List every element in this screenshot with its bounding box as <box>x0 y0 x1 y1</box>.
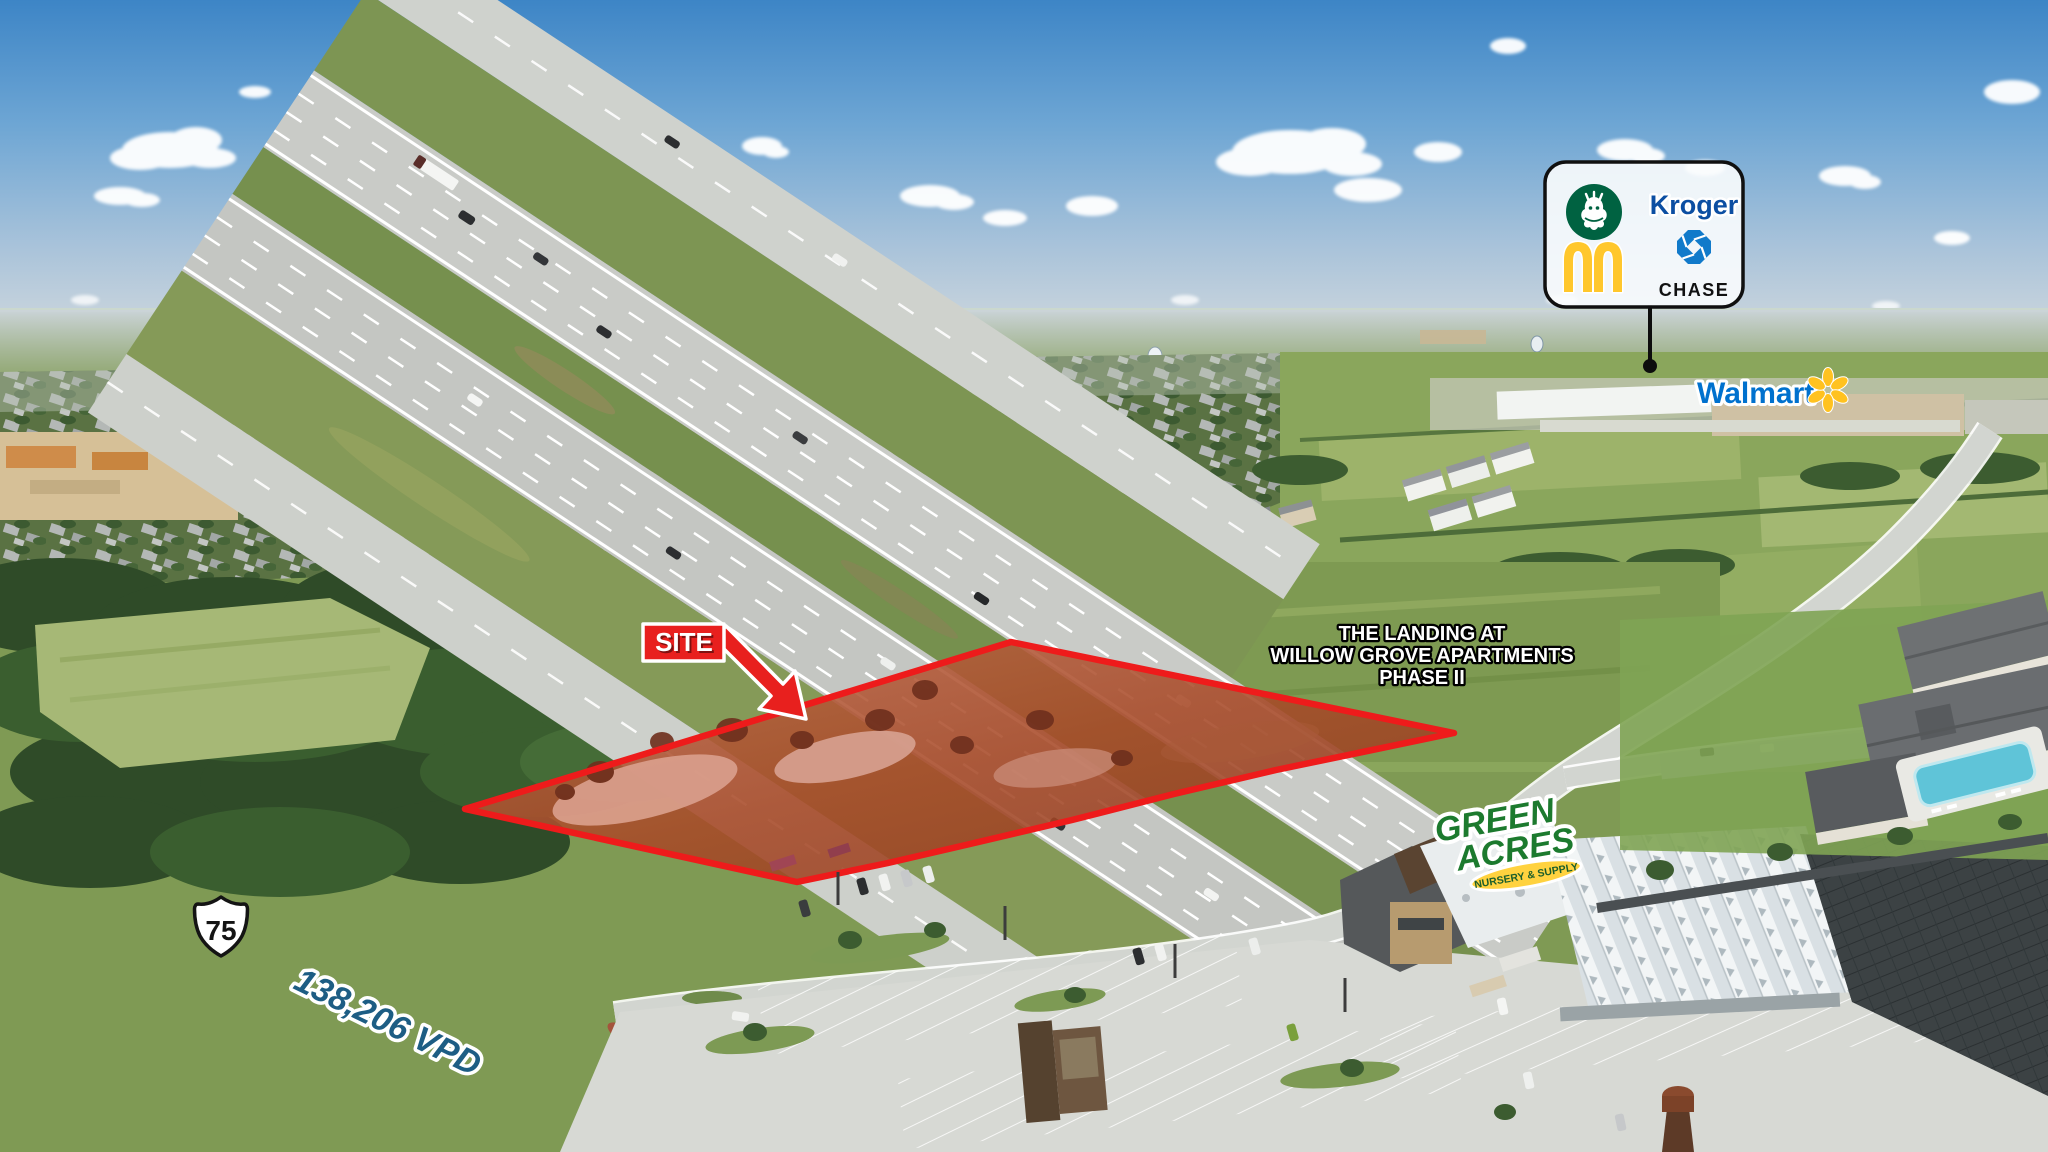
aerial-site-photo: 75 138,206 VPD SITE SITE THE LANDING AT … <box>0 0 2048 1152</box>
apartments-label-line1: THE LANDING AT <box>1339 623 1506 645</box>
starbucks-logo-icon <box>1566 184 1622 240</box>
chase-wordmark: CHASE <box>1659 280 1730 300</box>
storefront-awning <box>1398 918 1444 930</box>
callout-pointer-dot-icon <box>1643 359 1657 373</box>
site-label: SITE <box>655 627 713 657</box>
rustic-water-tower-icon <box>1662 1086 1694 1152</box>
scene: 75 138,206 VPD SITE SITE THE LANDING AT … <box>0 0 2048 1152</box>
apartments-label-line3: PHASE II <box>1379 667 1465 689</box>
walmart-wordmark: Walmart <box>1697 377 1814 410</box>
apartments-label-line2: WILLOW GROVE APARTMENTS <box>1270 645 1573 667</box>
storefront <box>1390 902 1452 964</box>
monument-sign <box>1018 1016 1108 1123</box>
kroger-wordmark: Kroger <box>1650 190 1739 220</box>
route-number: 75 <box>205 915 236 946</box>
